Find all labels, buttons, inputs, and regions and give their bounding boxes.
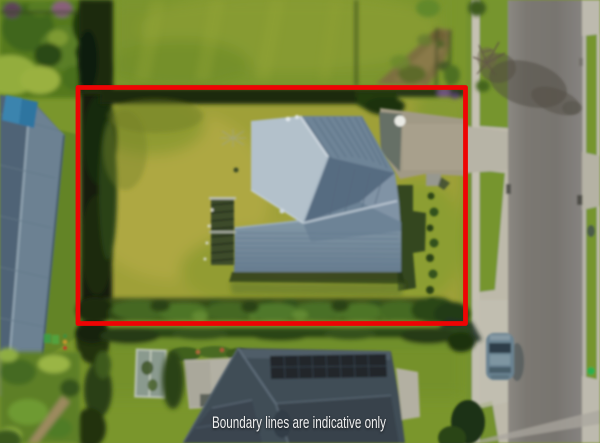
svg-text:Boundary lines are indicative: Boundary lines are indicative only [212, 414, 387, 432]
